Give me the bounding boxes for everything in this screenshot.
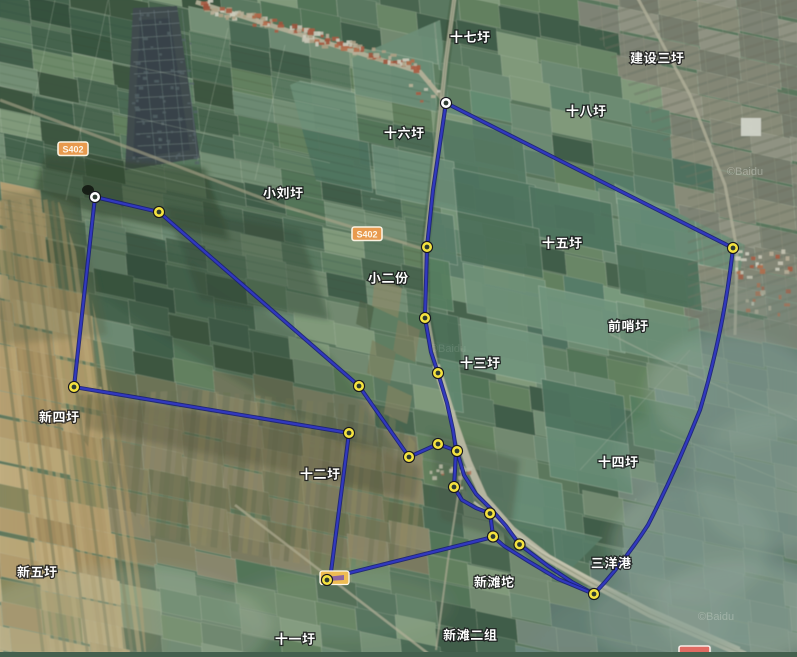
svg-text:©Baidu: ©Baidu	[698, 611, 734, 623]
svg-text:S402: S402	[356, 230, 377, 240]
svg-text:©Baidu: ©Baidu	[430, 343, 466, 355]
svg-text:S402: S402	[62, 145, 83, 155]
svg-text:©Baidu: ©Baidu	[727, 166, 763, 178]
